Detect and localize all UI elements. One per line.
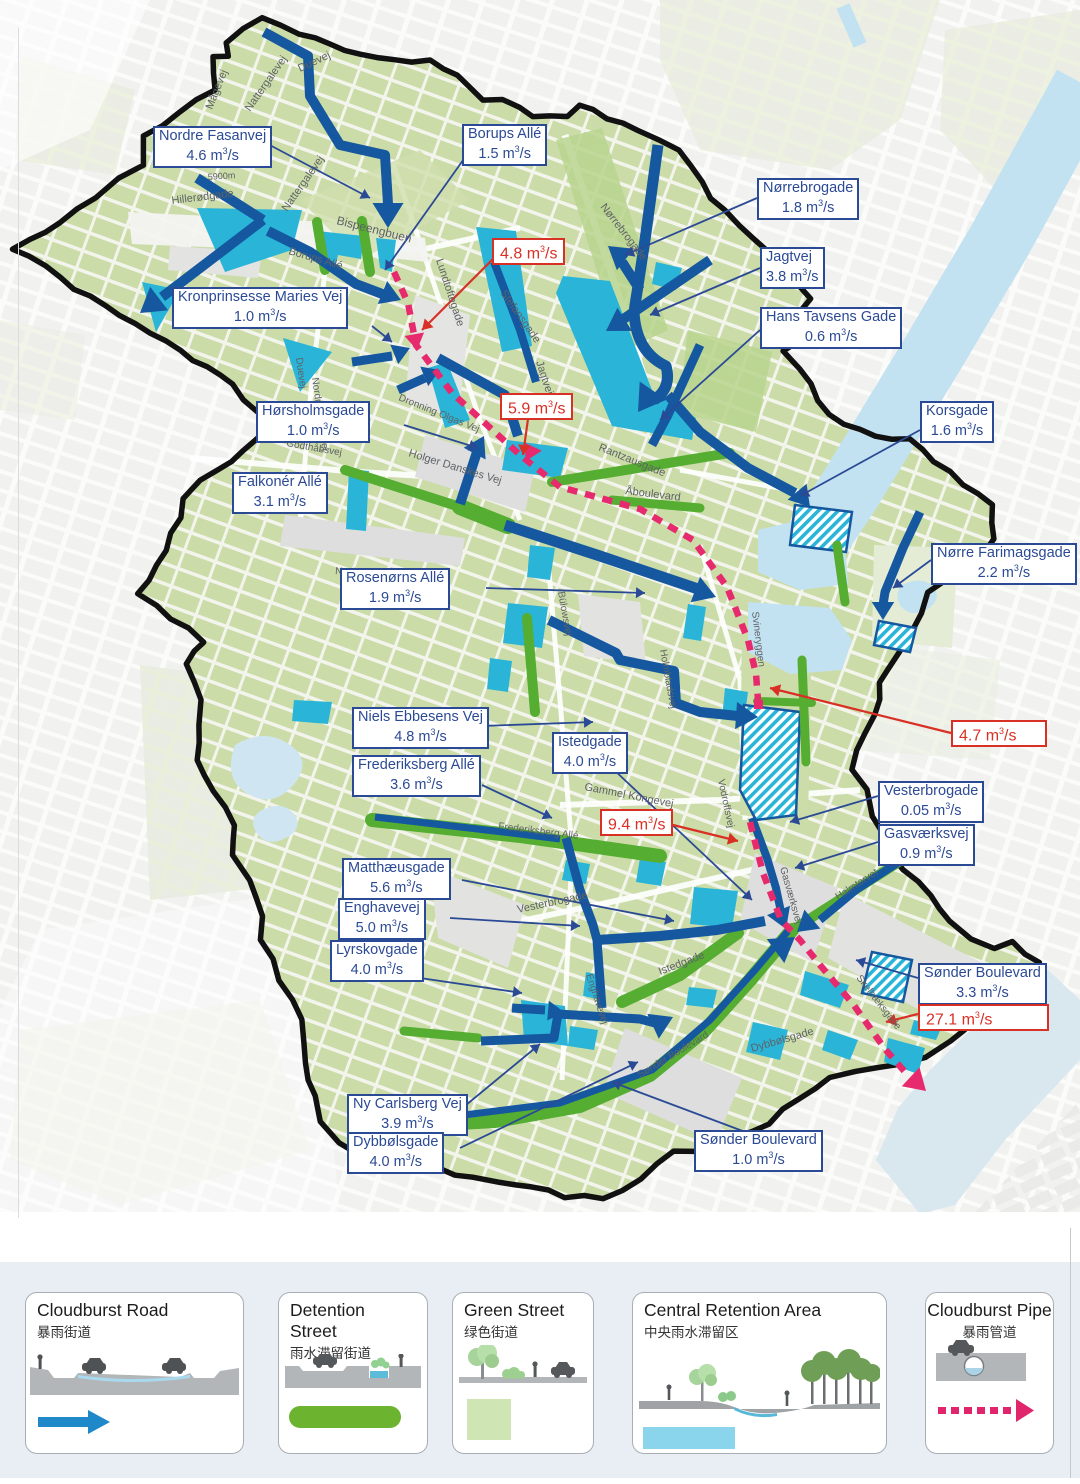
- svg-text:5900m: 5900m: [207, 170, 235, 182]
